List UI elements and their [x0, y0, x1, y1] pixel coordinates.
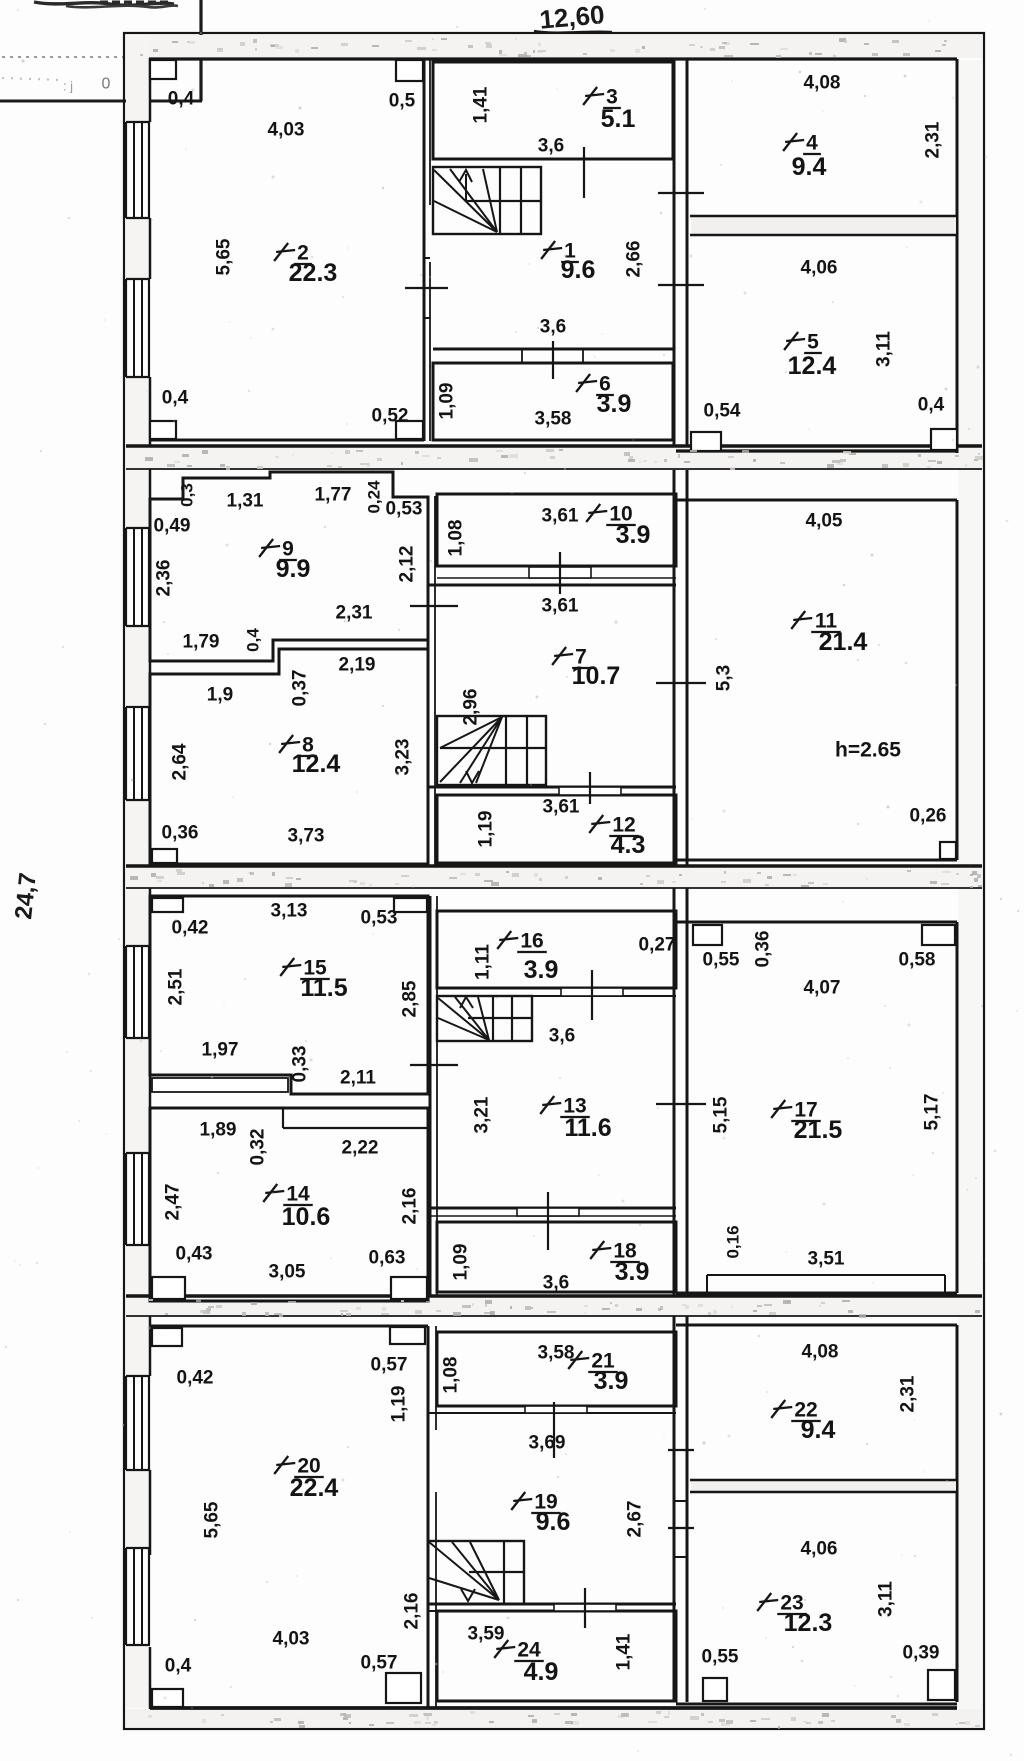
svg-text:2,51: 2,51 [166, 968, 187, 1005]
svg-text:1,31: 1,31 [227, 491, 264, 512]
svg-text:0,5: 0,5 [389, 91, 416, 112]
svg-text:2,36: 2,36 [154, 560, 175, 597]
svg-text:3.9: 3.9 [597, 390, 632, 418]
svg-text:3,58: 3,58 [535, 409, 572, 430]
svg-text:0,58: 0,58 [899, 950, 936, 971]
svg-text:0: 0 [102, 76, 111, 93]
svg-text:1,09: 1,09 [451, 1244, 472, 1281]
svg-text:1,08: 1,08 [441, 1357, 462, 1394]
svg-text:3,6: 3,6 [538, 136, 564, 157]
svg-text:1,77: 1,77 [315, 485, 352, 506]
svg-text:0,54: 0,54 [704, 401, 741, 422]
svg-text:3,73: 3,73 [288, 826, 325, 847]
svg-text:0,63: 0,63 [369, 1248, 406, 1269]
svg-text:3,59: 3,59 [468, 1624, 505, 1645]
svg-text:0,4: 0,4 [244, 628, 263, 652]
svg-text:3,13: 3,13 [271, 901, 308, 922]
svg-text:4,06: 4,06 [801, 258, 838, 279]
svg-text:4,08: 4,08 [804, 73, 841, 94]
svg-text:4.9: 4.9 [524, 1658, 559, 1686]
svg-text:2,85: 2,85 [400, 980, 421, 1017]
svg-text:4,06: 4,06 [801, 1539, 838, 1560]
svg-text:3,05: 3,05 [269, 1262, 306, 1283]
svg-text:5,65: 5,65 [214, 238, 235, 275]
svg-text:4,03: 4,03 [273, 1629, 310, 1650]
svg-text:3,61: 3,61 [542, 506, 579, 527]
svg-text:2,31: 2,31 [898, 1375, 919, 1412]
svg-text:21.4: 21.4 [819, 628, 868, 656]
svg-text:3.9: 3.9 [616, 521, 651, 549]
svg-text:4,05: 4,05 [806, 511, 843, 532]
svg-text:0,53: 0,53 [386, 499, 423, 520]
svg-text:2,19: 2,19 [339, 655, 376, 676]
svg-text:3,11: 3,11 [874, 331, 895, 367]
svg-text:0,33: 0,33 [290, 1046, 311, 1083]
svg-text:22.4: 22.4 [290, 1474, 339, 1502]
svg-text:1,11: 1,11 [473, 944, 494, 980]
svg-text:4,07: 4,07 [804, 978, 841, 999]
svg-text:0,55: 0,55 [703, 950, 740, 971]
svg-text:5,17: 5,17 [922, 1094, 943, 1131]
svg-text:3.9: 3.9 [524, 956, 559, 984]
svg-text:2,67: 2,67 [625, 1501, 646, 1538]
svg-text:3,61: 3,61 [542, 596, 579, 617]
svg-text:3,6: 3,6 [540, 317, 566, 338]
svg-text:11.5: 11.5 [300, 974, 347, 1002]
svg-text:2,66: 2,66 [624, 241, 645, 278]
svg-text:24,7: 24,7 [10, 871, 42, 920]
svg-text:0,26: 0,26 [910, 806, 947, 827]
svg-text:2,16: 2,16 [402, 1593, 423, 1630]
svg-text:16: 16 [520, 930, 543, 953]
svg-text:0,4: 0,4 [168, 89, 195, 110]
svg-text:0,16: 0,16 [724, 1225, 743, 1258]
svg-text:12.4: 12.4 [292, 750, 341, 778]
svg-text:3,51: 3,51 [808, 1249, 845, 1270]
svg-text:21.5: 21.5 [794, 1116, 843, 1144]
svg-text:0,39: 0,39 [903, 1643, 940, 1664]
svg-text:0,49: 0,49 [154, 516, 191, 537]
svg-text:0,57: 0,57 [361, 1653, 398, 1674]
svg-text:3,23: 3,23 [393, 739, 414, 776]
svg-text:5,3: 5,3 [714, 665, 735, 691]
svg-text:0,43: 0,43 [176, 1244, 213, 1265]
svg-text:2,22: 2,22 [342, 1138, 379, 1159]
svg-text:0,42: 0,42 [177, 1368, 214, 1389]
svg-text:0,36: 0,36 [162, 823, 199, 844]
svg-text:h=2.65: h=2.65 [835, 739, 901, 762]
svg-text:4,03: 4,03 [268, 120, 305, 141]
svg-text:0,3: 0,3 [178, 483, 197, 507]
svg-text:3,11: 3,11 [876, 1581, 897, 1617]
svg-text:2,47: 2,47 [163, 1184, 184, 1221]
svg-text:1,97: 1,97 [202, 1040, 239, 1061]
svg-text:9.4: 9.4 [792, 153, 827, 181]
svg-text:2,31: 2,31 [336, 603, 373, 624]
svg-text:0,27: 0,27 [639, 935, 676, 956]
svg-text:1,09: 1,09 [437, 383, 458, 420]
svg-text:5: 5 [807, 331, 819, 354]
svg-text:0,55: 0,55 [702, 1647, 739, 1668]
svg-text:3,6: 3,6 [549, 1026, 575, 1047]
svg-text:12,60: 12,60 [538, 0, 605, 35]
svg-text:1,19: 1,19 [476, 811, 497, 848]
svg-text:0,4: 0,4 [162, 388, 189, 409]
svg-text:0,36: 0,36 [753, 931, 774, 968]
svg-text:9.4: 9.4 [801, 1416, 836, 1444]
svg-text:1,08: 1,08 [446, 520, 467, 557]
svg-text:10.7: 10.7 [572, 662, 621, 690]
svg-text:: j: : j [63, 79, 73, 94]
svg-text:5.1: 5.1 [601, 105, 636, 133]
svg-text:5,15: 5,15 [711, 1096, 732, 1133]
svg-text:2,11: 2,11 [340, 1068, 376, 1089]
svg-text:4.3: 4.3 [611, 831, 646, 859]
svg-text:2,31: 2,31 [923, 121, 944, 158]
svg-text:4,08: 4,08 [802, 1342, 839, 1363]
svg-text:11.6: 11.6 [564, 1114, 611, 1142]
svg-text:5,65: 5,65 [202, 1501, 223, 1538]
svg-text:9.6: 9.6 [536, 1508, 571, 1536]
svg-text:2,16: 2,16 [400, 1188, 421, 1225]
svg-text:3,61: 3,61 [543, 797, 580, 818]
svg-text:1,9: 1,9 [207, 685, 233, 706]
svg-text:10.6: 10.6 [282, 1203, 331, 1231]
svg-text:0,53: 0,53 [361, 908, 398, 929]
svg-text:0,57: 0,57 [371, 1355, 408, 1376]
svg-text:12.3: 12.3 [784, 1609, 833, 1637]
svg-text:1,79: 1,79 [183, 632, 220, 653]
svg-text:12.4: 12.4 [788, 352, 837, 380]
svg-text:3,21: 3,21 [472, 1096, 493, 1133]
svg-text:2,64: 2,64 [170, 743, 191, 780]
svg-text:3.9: 3.9 [615, 1258, 650, 1286]
svg-text:3,58: 3,58 [538, 1343, 575, 1364]
svg-text:3,6: 3,6 [543, 1273, 569, 1294]
svg-text:1,41: 1,41 [471, 86, 492, 123]
svg-text:9.6: 9.6 [561, 256, 596, 284]
svg-text:2,12: 2,12 [397, 546, 418, 583]
svg-text:0,37: 0,37 [290, 670, 311, 707]
svg-text:1,89: 1,89 [200, 1120, 237, 1141]
svg-text:0,4: 0,4 [918, 395, 945, 416]
svg-text:1,19: 1,19 [389, 1386, 410, 1423]
svg-text:0,24: 0,24 [365, 480, 384, 514]
svg-text:1,41: 1,41 [614, 1633, 635, 1670]
svg-text:3,69: 3,69 [529, 1433, 566, 1454]
svg-text:2,96: 2,96 [461, 689, 482, 726]
svg-text:0,4: 0,4 [165, 1656, 192, 1677]
svg-text:3.9: 3.9 [594, 1367, 629, 1395]
svg-text:0,32: 0,32 [248, 1129, 269, 1166]
svg-text:22.3: 22.3 [289, 259, 338, 287]
svg-text:4: 4 [806, 132, 818, 155]
svg-text:9.9: 9.9 [276, 555, 311, 583]
